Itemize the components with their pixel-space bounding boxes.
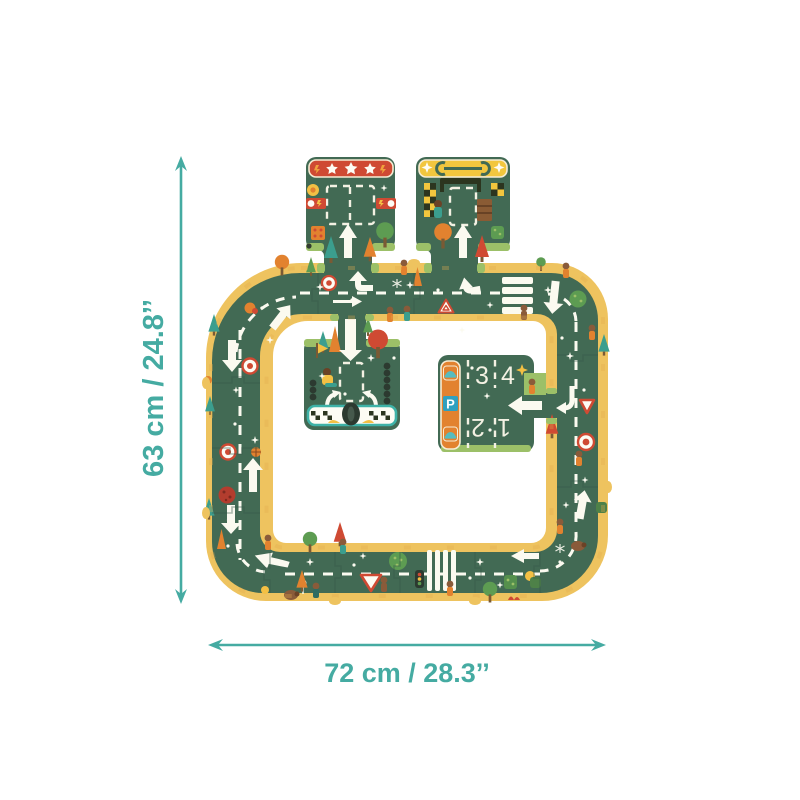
- svg-text:2: 2: [471, 413, 485, 441]
- svg-text:1: 1: [497, 413, 511, 441]
- svg-text:4: 4: [501, 362, 515, 390]
- svg-text:72 cm / 28.3’’: 72 cm / 28.3’’: [324, 658, 490, 688]
- svg-text:3: 3: [475, 362, 489, 390]
- svg-text:P: P: [446, 397, 455, 412]
- svg-text:63 cm / 24.8’’: 63 cm / 24.8’’: [138, 299, 170, 477]
